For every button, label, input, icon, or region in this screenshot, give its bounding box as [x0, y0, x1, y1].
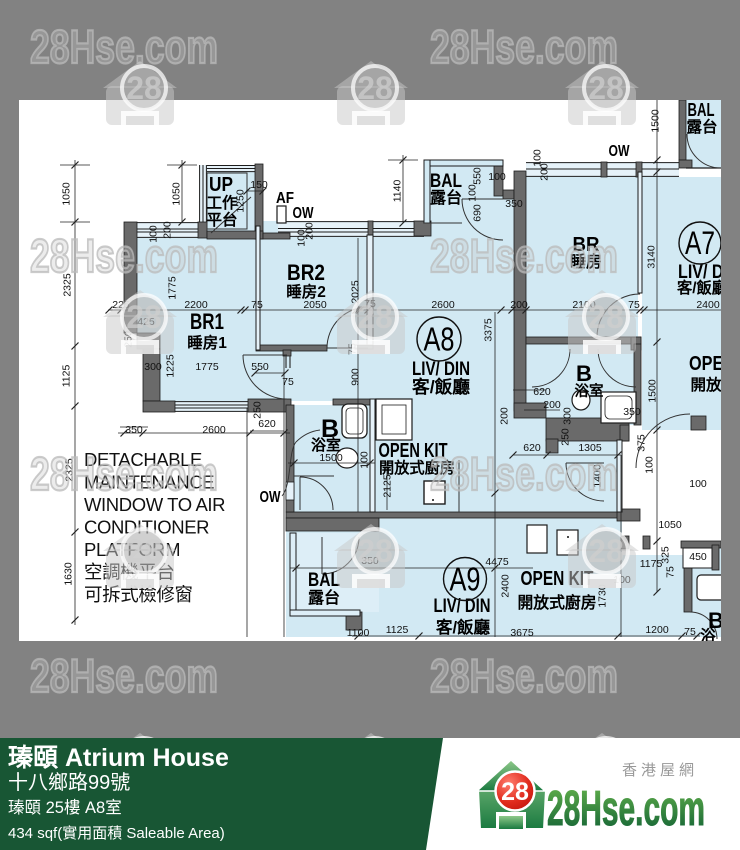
svg-text:1125: 1125 [386, 624, 409, 636]
svg-text:75: 75 [665, 566, 677, 578]
svg-text:3375: 3375 [483, 318, 495, 342]
svg-text:客/飯廳: 客/飯廳 [411, 377, 471, 397]
svg-text:浴室: 浴室 [311, 436, 341, 454]
svg-text:平台: 平台 [206, 210, 237, 229]
svg-text:75: 75 [251, 299, 263, 311]
svg-text:28Hse.com: 28Hse.com [30, 447, 218, 500]
svg-text:露台: 露台 [430, 188, 462, 207]
svg-text:客/飯廳: 客/飯廳 [677, 278, 727, 297]
svg-text:620: 620 [533, 386, 551, 398]
svg-text:200: 200 [543, 399, 561, 411]
svg-text:28: 28 [357, 299, 393, 335]
svg-text:28Hse.com: 28Hse.com [430, 447, 618, 500]
svg-text:75: 75 [282, 376, 294, 388]
svg-text:BR2: BR2 [287, 260, 325, 285]
svg-text:75: 75 [684, 626, 696, 638]
svg-text:28: 28 [588, 70, 624, 106]
svg-text:2400: 2400 [500, 574, 512, 598]
svg-text:75: 75 [628, 299, 640, 311]
svg-text:350: 350 [505, 198, 523, 210]
svg-text:100: 100 [488, 171, 506, 183]
svg-text:1100: 1100 [347, 627, 370, 639]
svg-text:1500: 1500 [647, 379, 659, 403]
svg-text:睡房1: 睡房1 [187, 333, 227, 352]
svg-text:550: 550 [472, 167, 484, 185]
svg-text:BAL: BAL [688, 100, 715, 120]
svg-text:開放式廚房: 開放式廚房 [518, 593, 597, 612]
svg-text:100: 100 [359, 451, 371, 469]
svg-text:瑧頤 Atrium House: 瑧頤 Atrium House [8, 744, 229, 772]
svg-text:BR1: BR1 [190, 309, 224, 334]
svg-text:露台: 露台 [686, 117, 717, 136]
svg-text:3140: 3140 [646, 245, 658, 269]
svg-text:BAL: BAL [430, 171, 462, 192]
svg-text:550: 550 [251, 361, 269, 373]
svg-text:28Hse.com: 28Hse.com [430, 229, 618, 282]
svg-text:OW: OW [609, 143, 631, 160]
svg-text:UP: UP [209, 174, 233, 196]
svg-text:客/飯廳: 客/飯廳 [435, 617, 491, 637]
svg-text:450: 450 [689, 551, 707, 563]
svg-text:100: 100 [689, 478, 707, 490]
svg-text:BAL: BAL [308, 570, 340, 591]
svg-text:28Hse.com: 28Hse.com [430, 649, 618, 702]
svg-text:A7: A7 [685, 225, 715, 261]
svg-text:1050: 1050 [61, 182, 73, 206]
svg-text:350: 350 [623, 406, 641, 418]
svg-text:100: 100 [644, 456, 656, 474]
svg-text:900: 900 [350, 368, 362, 386]
svg-text:690: 690 [472, 204, 484, 222]
svg-text:1225: 1225 [165, 354, 177, 378]
svg-text:1050: 1050 [658, 519, 682, 531]
svg-text:4475: 4475 [485, 556, 509, 568]
svg-text:250: 250 [560, 428, 572, 446]
svg-text:28: 28 [126, 533, 162, 569]
svg-text:28: 28 [126, 70, 162, 106]
svg-text:1175: 1175 [640, 558, 663, 570]
svg-text:1125: 1125 [61, 365, 73, 388]
svg-text:28Hse.com: 28Hse.com [30, 229, 218, 282]
svg-text:香港屋網: 香港屋網 [622, 762, 698, 779]
svg-text:2600: 2600 [431, 299, 455, 311]
svg-text:2600: 2600 [202, 424, 226, 436]
svg-text:300: 300 [562, 407, 574, 425]
svg-text:OW: OW [293, 205, 314, 222]
svg-text:3675: 3675 [510, 627, 534, 639]
svg-text:1140: 1140 [392, 180, 404, 203]
svg-text:350: 350 [125, 424, 143, 436]
svg-text:28Hse.com: 28Hse.com [30, 20, 218, 73]
svg-text:200: 200 [499, 407, 511, 425]
svg-text:28: 28 [357, 70, 393, 106]
svg-text:AF: AF [276, 190, 294, 207]
svg-text:B: B [576, 361, 592, 386]
svg-text:露台: 露台 [308, 588, 340, 607]
svg-text:1775: 1775 [195, 361, 219, 373]
svg-text:1630: 1630 [63, 562, 75, 586]
svg-text:620: 620 [258, 418, 276, 430]
svg-text:28: 28 [501, 778, 529, 806]
svg-text:434 sqf(實用面積 Saleable Area): 434 sqf(實用面積 Saleable Area) [8, 824, 225, 842]
svg-text:工作: 工作 [206, 193, 238, 212]
svg-text:150: 150 [250, 179, 268, 191]
svg-text:A8: A8 [424, 321, 455, 358]
svg-text:睡房2: 睡房2 [286, 282, 326, 301]
svg-text:28: 28 [588, 299, 624, 335]
svg-text:100: 100 [467, 184, 479, 202]
svg-text:1050: 1050 [171, 182, 183, 206]
svg-text:2125: 2125 [382, 474, 394, 498]
svg-text:375: 375 [636, 434, 648, 452]
svg-text:300: 300 [144, 361, 162, 373]
svg-text:200: 200 [539, 163, 551, 181]
svg-text:2400: 2400 [696, 299, 720, 311]
svg-text:A9: A9 [450, 561, 481, 598]
svg-text:28Hse.com: 28Hse.com [30, 649, 218, 702]
svg-text:OW: OW [260, 489, 282, 506]
svg-text:28: 28 [588, 533, 624, 569]
svg-text:200: 200 [304, 222, 316, 240]
svg-text:LIV/ DIN: LIV/ DIN [434, 595, 491, 617]
svg-text:250: 250 [252, 401, 264, 419]
svg-text:28: 28 [357, 533, 393, 569]
svg-text:瑧頤 25樓 A8室: 瑧頤 25樓 A8室 [8, 798, 122, 817]
svg-text:200: 200 [510, 299, 528, 311]
svg-text:十八鄉路99號: 十八鄉路99號 [8, 771, 130, 794]
svg-text:28Hse.com: 28Hse.com [430, 20, 618, 73]
svg-text:1200: 1200 [645, 624, 669, 636]
svg-text:1500: 1500 [650, 109, 662, 133]
svg-text:浴室: 浴室 [575, 382, 604, 400]
svg-text:開放: 開放 [690, 375, 722, 394]
svg-text:28: 28 [126, 299, 162, 335]
svg-text:28Hse.com: 28Hse.com [547, 782, 705, 836]
